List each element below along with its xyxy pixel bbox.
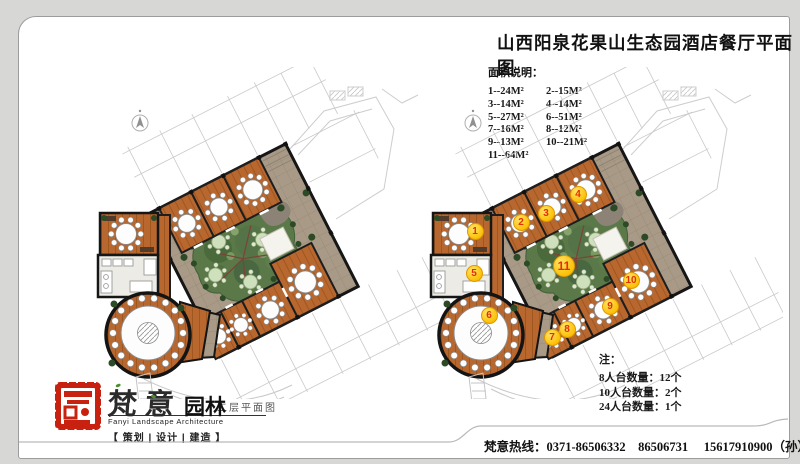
room-number-marker: 3 <box>538 205 555 222</box>
floor-plan-right: 1234567891011 <box>417 67 783 399</box>
room-number-marker: 1 <box>467 223 484 240</box>
room-number-marker: 8 <box>559 321 576 338</box>
brand-name-zh: 梵意 <box>107 381 184 423</box>
hotline: 梵意热线：0371-86506332 86506731 15617910900（… <box>484 436 800 455</box>
floor-plan-left <box>84 67 450 399</box>
room-number-marker: 4 <box>570 186 587 203</box>
room-number-marker: 10 <box>623 272 640 289</box>
room-number-marker: 9 <box>602 298 619 315</box>
notes-list: 8人台数量：12个10人台数量：2个24人台数量：1个 <box>599 371 682 415</box>
room-number-marker: 7 <box>544 329 561 346</box>
page-background: 山西阳泉花果山生态园酒店餐厅平面图 面积说明： 1--24M²2--15M²3-… <box>0 0 800 464</box>
room-number-marker: 5 <box>466 265 483 282</box>
notes-title: 注： <box>599 351 682 367</box>
room-number-marker: 2 <box>513 214 530 231</box>
company-logo: 梵意 园林 Fanyi Landscape Architecture 【 策划 … <box>55 381 266 444</box>
room-number-marker: 11 <box>553 255 575 277</box>
brand-services: 【 策划 | 设计 | 建造 】 <box>108 429 266 444</box>
note-item: 10人台数量：2个 <box>599 386 682 401</box>
note-item: 24人台数量：1个 <box>599 400 682 415</box>
table-count-notes: 注： 8人台数量：12个10人台数量：2个24人台数量：1个 <box>599 351 682 415</box>
drawing-sheet: 山西阳泉花果山生态园酒店餐厅平面图 面积说明： 1--24M²2--15M²3-… <box>18 16 790 459</box>
note-item: 8人台数量：12个 <box>599 371 682 386</box>
seal-icon <box>55 381 101 431</box>
room-number-marker: 6 <box>481 307 498 324</box>
